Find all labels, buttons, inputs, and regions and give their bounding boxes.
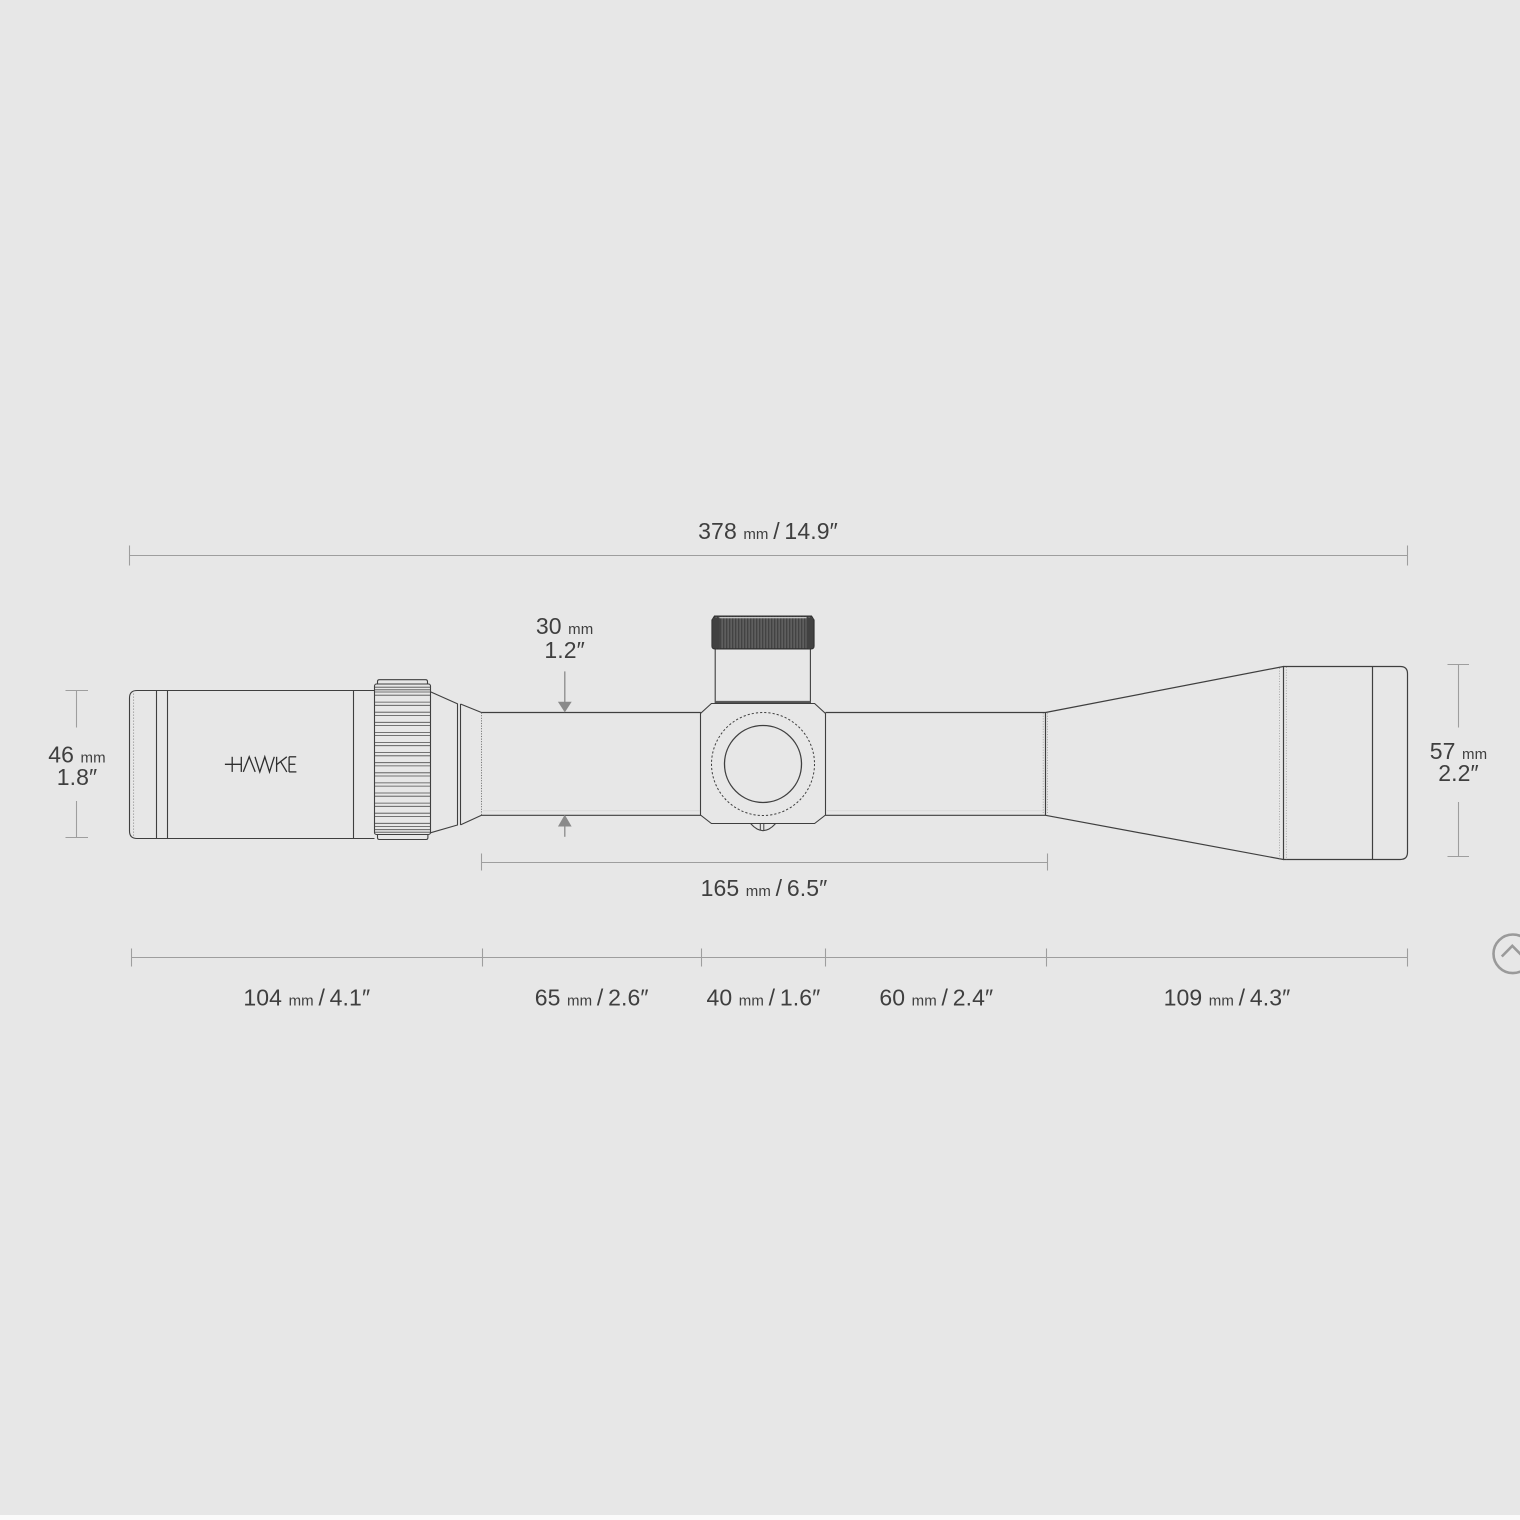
svg-text:1.2″: 1.2″: [544, 637, 585, 663]
svg-text:40 mm / 1.6″: 40 mm / 1.6″: [706, 985, 820, 1011]
svg-text:378 mm / 14.9″: 378 mm / 14.9″: [698, 518, 838, 544]
svg-text:60 mm / 2.4″: 60 mm / 2.4″: [879, 985, 993, 1011]
svg-text:65 mm / 2.6″: 65 mm / 2.6″: [535, 985, 649, 1011]
svg-text:2.2″: 2.2″: [1438, 760, 1479, 786]
svg-text:1.8″: 1.8″: [57, 764, 98, 790]
